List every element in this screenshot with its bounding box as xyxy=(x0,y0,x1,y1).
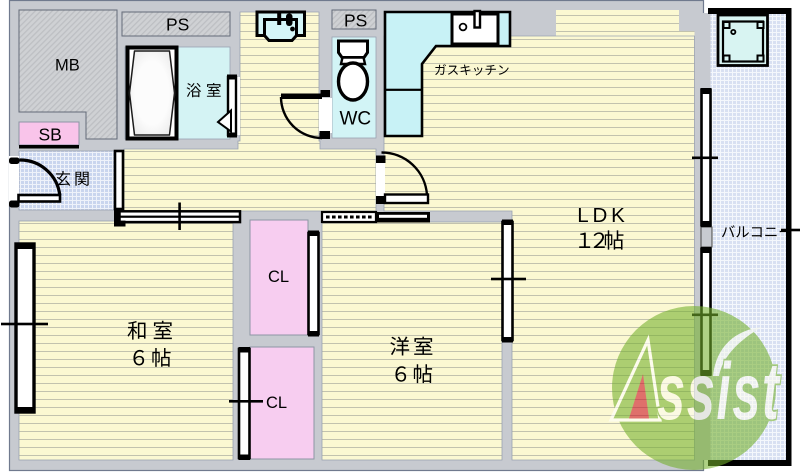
svg-text:PS: PS xyxy=(166,15,189,35)
svg-text:SB: SB xyxy=(39,125,62,145)
svg-text:LDK: LDK xyxy=(577,204,628,227)
svg-text:ssist: ssist xyxy=(657,347,781,437)
svg-text:PS: PS xyxy=(344,11,367,31)
svg-text:CL: CL xyxy=(268,268,289,286)
svg-text:MB: MB xyxy=(55,57,80,75)
svg-text:CL: CL xyxy=(266,394,287,412)
svg-text:WC: WC xyxy=(340,109,372,130)
